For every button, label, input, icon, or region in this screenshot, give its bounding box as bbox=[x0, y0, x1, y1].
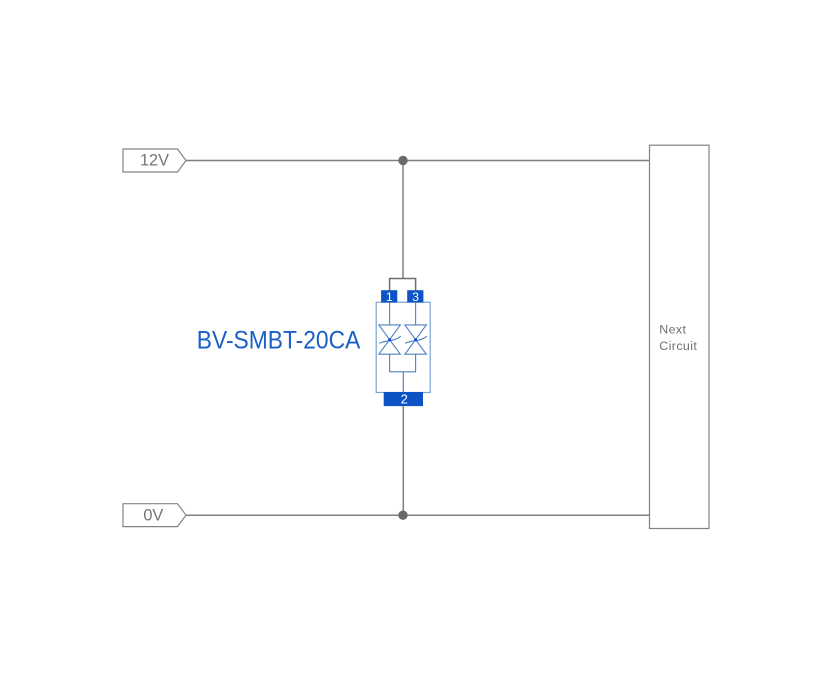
svg-text:0V: 0V bbox=[143, 506, 163, 524]
svg-text:12V: 12V bbox=[140, 152, 169, 170]
svg-text:Circuit: Circuit bbox=[659, 339, 697, 353]
svg-text:Next: Next bbox=[659, 322, 686, 336]
svg-text:BV-SMBT-20CA: BV-SMBT-20CA bbox=[197, 327, 361, 355]
svg-text:2: 2 bbox=[401, 392, 408, 407]
svg-text:1: 1 bbox=[386, 290, 393, 304]
svg-text:3: 3 bbox=[412, 290, 419, 304]
